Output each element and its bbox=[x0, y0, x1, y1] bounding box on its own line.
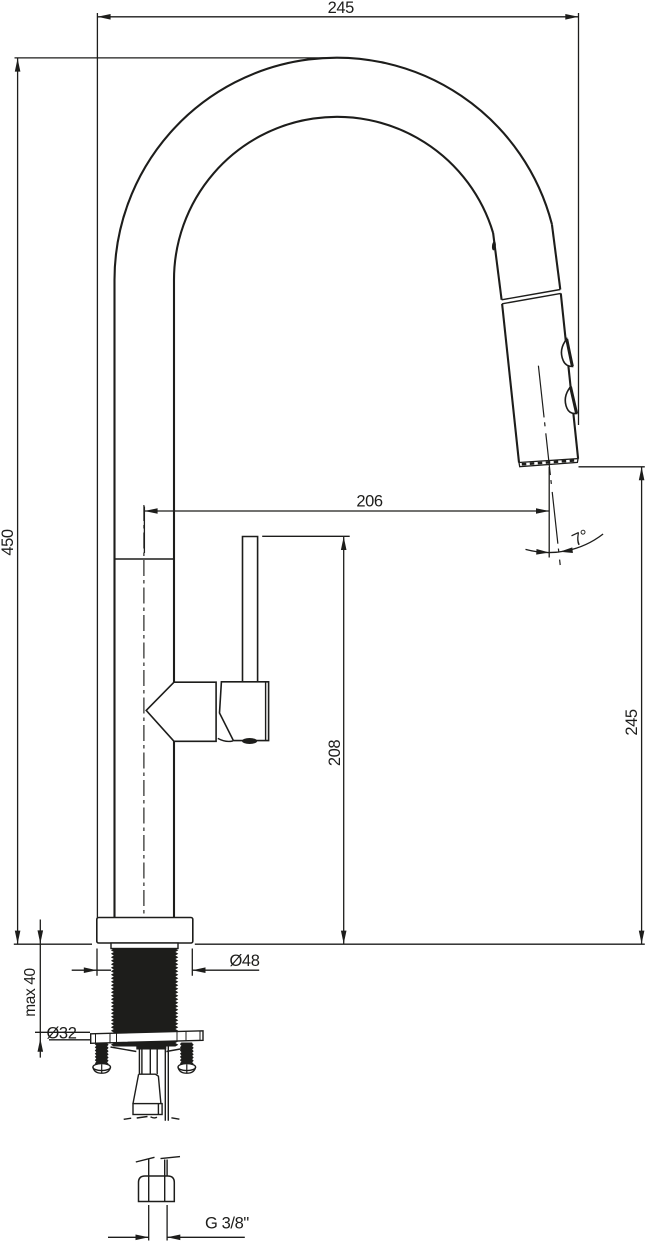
svg-text:G 3/8": G 3/8" bbox=[205, 1215, 249, 1233]
svg-text:208: 208 bbox=[326, 740, 344, 767]
svg-text:Ø48: Ø48 bbox=[230, 952, 260, 970]
svg-text:245: 245 bbox=[623, 709, 641, 736]
svg-text:245: 245 bbox=[328, 0, 355, 17]
svg-text:Ø32: Ø32 bbox=[47, 1025, 77, 1043]
svg-text:450: 450 bbox=[0, 529, 17, 556]
svg-text:max 40: max 40 bbox=[22, 968, 39, 1017]
svg-text:206: 206 bbox=[356, 492, 383, 510]
svg-text:7°: 7° bbox=[569, 525, 592, 550]
